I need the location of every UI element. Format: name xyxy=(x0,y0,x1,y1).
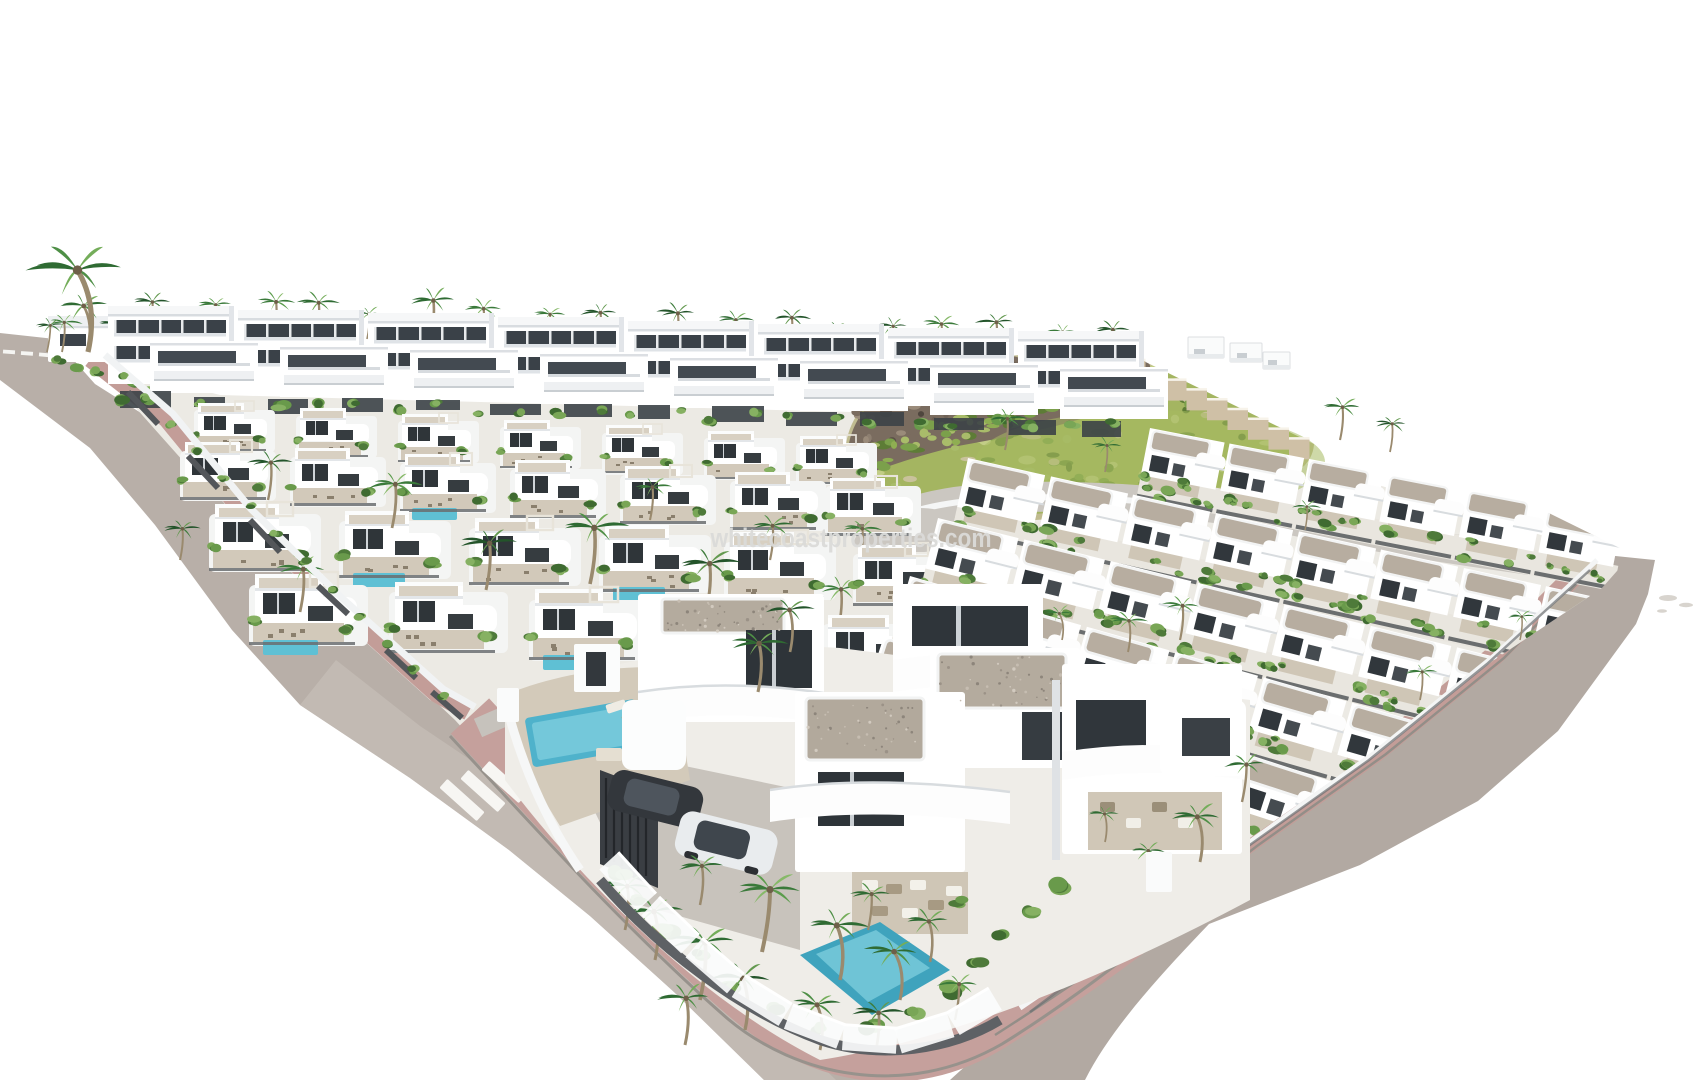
svg-text:whitecoastproperties.com: whitecoastproperties.com xyxy=(710,523,992,553)
